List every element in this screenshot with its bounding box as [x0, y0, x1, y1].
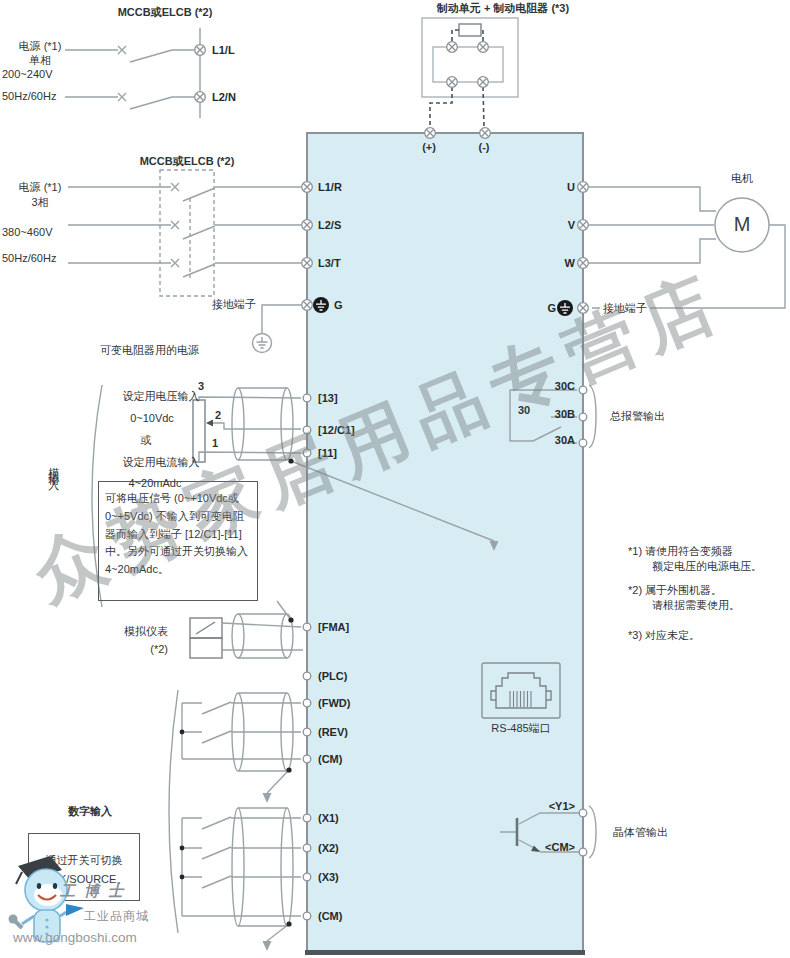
- ground-symbol-left: [313, 297, 329, 313]
- logo-url-text: www.gongboshi.com: [13, 930, 137, 945]
- terminal-fwd: (FWD): [318, 697, 350, 711]
- terminal-g-right: G: [547, 302, 556, 316]
- terminal-cm3: <CM>: [545, 841, 575, 855]
- terminal-g-left: G: [334, 299, 343, 313]
- breaker-label-3ph: MCCB或ELCB (*2): [140, 155, 235, 169]
- terminal-plc: (PLC): [318, 670, 347, 684]
- terminal-rev: (REV): [318, 726, 348, 740]
- ground-label-left: 接地端子: [212, 298, 256, 312]
- pot-terminal-2: 2: [215, 409, 221, 423]
- terminal-x3: (X3): [318, 871, 339, 885]
- terminal-13: [13]: [318, 392, 338, 406]
- terminal-l2s: L2/S: [318, 219, 341, 233]
- logo-brand-text: 工博士: [60, 882, 132, 901]
- curr-input-label: 设定用电流输入: [123, 456, 200, 470]
- breaker-label-1ph: MCCB或ELCB (*2): [118, 6, 213, 20]
- terminal-v: V: [568, 219, 575, 233]
- relay-30-label: 30: [518, 404, 530, 418]
- terminal-l1l: L1/L: [212, 44, 235, 58]
- brake-unit-title: 制动单元 + 制动电阻器 (*3): [437, 2, 569, 16]
- terminal-l3t: L3/T: [318, 257, 341, 271]
- analog-group-label: 模拟输入: [46, 458, 60, 474]
- pot-power-label: 可变电阻器用的电源: [100, 344, 199, 358]
- meter-label: 模拟仪表: [124, 625, 168, 639]
- meter-ref-label: (*2): [150, 643, 168, 657]
- rs485-port-label: RS-485端口: [491, 722, 550, 736]
- terminal-11: [11]: [318, 447, 337, 461]
- inverter-wiring-diagram: 制动单元 + 制动电阻器 (*3) (+) (-) MCCB或ELCB (*2)…: [0, 0, 790, 958]
- wiring-lines: [0, 0, 790, 958]
- terminal-w: W: [565, 257, 575, 271]
- terminal-y1: <Y1>: [549, 800, 575, 814]
- terminal-12c1: [12/C1]: [318, 424, 355, 438]
- ground-symbol-right: [557, 300, 573, 316]
- terminal-fma: [FMA]: [318, 621, 349, 635]
- terminal-cm2: (CM): [318, 910, 342, 924]
- terminal-l1r: L1/R: [318, 181, 342, 195]
- terminal-minus: (-): [479, 141, 490, 155]
- freq-label-3ph: 50Hz/60Hz: [2, 252, 56, 266]
- logo-mall-text: 工业品商城: [84, 908, 149, 925]
- terminal-30a: 30A: [555, 434, 575, 448]
- ground-label-right: 接地端子: [600, 302, 650, 316]
- inverter-block: [307, 133, 583, 951]
- note-3: *3) 对应未定。: [628, 629, 700, 643]
- freq-label-1ph: 50Hz/60Hz: [2, 90, 56, 104]
- voltage-label-1ph: 200~240V: [2, 68, 52, 82]
- digital-group-label: 数字输入: [68, 805, 112, 819]
- phase-label-3ph: 3相: [31, 196, 48, 210]
- source-label-3ph: 电源 (*1): [19, 181, 62, 195]
- motor-symbol: M: [734, 212, 751, 237]
- source-label-1ph: 电源 (*1): [19, 40, 62, 54]
- terminal-u: U: [567, 181, 575, 195]
- voltage-label-3ph: 380~460V: [2, 226, 52, 240]
- terminal-cm1: (CM): [318, 753, 342, 767]
- terminal-30c: 30C: [555, 380, 575, 394]
- note-2-line1: *2) 属于外围机器。: [628, 584, 722, 598]
- terminal-x2: (X2): [318, 842, 339, 856]
- transistor-output-label: 晶体管输出: [613, 826, 668, 840]
- note-1-line1: *1) 请使用符合变频器: [628, 545, 733, 559]
- or-label: 或: [141, 434, 152, 448]
- volt-range-label: 0~10Vdc: [130, 412, 174, 426]
- alarm-output-label: 总报警输出: [610, 410, 665, 424]
- terminal-x1: (X1): [318, 812, 339, 826]
- note-2-line2: 请根据需要使用。: [652, 599, 740, 613]
- analog-note-box: 可将电压信号 (0~+10Vdc或0~+5Vdc) 不输入到可变电阻器而输入到端…: [98, 481, 258, 601]
- terminal-30b: 30B: [555, 408, 575, 422]
- volt-input-label: 设定用电压输入: [123, 390, 200, 404]
- terminal-plus: (+): [422, 141, 436, 155]
- motor-label: 电机: [731, 172, 753, 186]
- pot-terminal-1: 1: [212, 437, 218, 451]
- terminal-l2n: L2/N: [212, 91, 236, 105]
- pot-terminal-3: 3: [198, 380, 204, 394]
- note-1-line2: 额定电压的电源电压。: [652, 560, 762, 574]
- phase-label-1ph: 单相: [29, 54, 51, 68]
